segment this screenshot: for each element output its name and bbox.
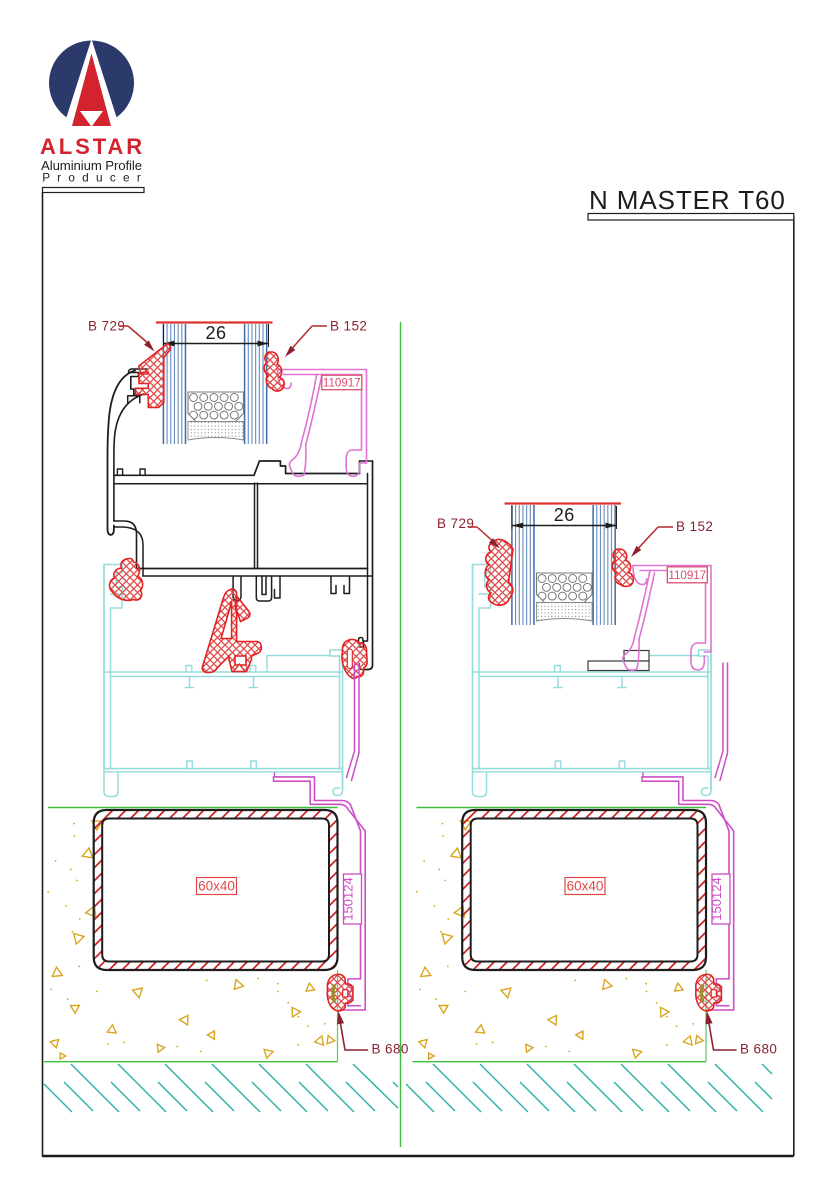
svg-text:150124: 150124 — [709, 877, 724, 920]
svg-text:ALSTAR: ALSTAR — [40, 134, 145, 159]
svg-text:P r o d u c e r: P r o d u c e r — [42, 171, 143, 185]
svg-text:B 680: B 680 — [372, 1042, 409, 1057]
svg-text:N MASTER T60: N MASTER T60 — [589, 185, 786, 215]
svg-text:110917: 110917 — [668, 569, 706, 582]
svg-text:60x40: 60x40 — [567, 879, 604, 894]
svg-text:26: 26 — [205, 323, 226, 343]
svg-text:B 152: B 152 — [676, 519, 713, 534]
svg-text:26: 26 — [554, 505, 575, 525]
svg-text:110917: 110917 — [323, 376, 361, 389]
svg-text:B 152: B 152 — [330, 319, 367, 334]
svg-text:150124: 150124 — [341, 877, 356, 920]
svg-text:B 729: B 729 — [437, 516, 474, 531]
svg-text:60x40: 60x40 — [198, 879, 235, 894]
svg-text:B 680: B 680 — [740, 1042, 777, 1057]
